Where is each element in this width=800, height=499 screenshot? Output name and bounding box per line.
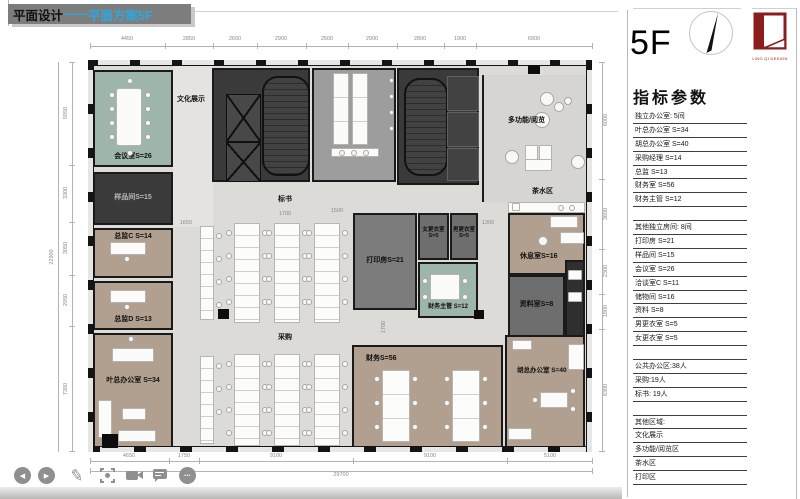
pen-tool-button[interactable]: ✎	[68, 465, 85, 487]
panel-row: 其他独立房间: 8间	[633, 221, 747, 235]
wall-top	[88, 60, 592, 66]
more-icon: •••	[184, 473, 191, 479]
dimension-line	[444, 43, 445, 49]
chair-icon	[570, 406, 576, 412]
panel-row: 独立办公室: 5间	[633, 110, 747, 124]
desk	[540, 392, 568, 408]
chair-icon	[342, 361, 348, 367]
urinal-icon	[389, 110, 394, 115]
dimension-label: 1700	[381, 321, 387, 333]
floor-plan: 会议室S=26 样品间S=15 总监C S=14 总监D S=13 叶总办公室 …	[88, 60, 592, 452]
comment-line-icon	[155, 475, 161, 476]
chair-icon	[216, 302, 222, 308]
company-logo-icon	[750, 12, 792, 54]
panel-row-spacer	[633, 402, 747, 416]
desk	[112, 348, 154, 362]
coffee-table	[122, 408, 146, 420]
chair-icon	[266, 407, 272, 413]
focus-corner	[100, 468, 104, 472]
stair-icon	[404, 78, 448, 176]
dimension-line	[69, 62, 75, 63]
stair-core	[397, 68, 479, 185]
dimension-label: 9100	[270, 453, 282, 459]
lounge-pouf	[505, 150, 519, 164]
chair-icon	[342, 276, 348, 282]
panel-row: 洽谈室C S=11	[633, 277, 747, 291]
chair-icon	[216, 256, 222, 262]
slide-right-border	[796, 8, 797, 499]
room-label: 资料室S=8	[510, 301, 563, 309]
dimension-line	[213, 43, 214, 49]
chair-icon	[216, 233, 222, 239]
panel-row: 标书: 19人	[633, 388, 747, 402]
header-rule-right2	[752, 8, 797, 9]
chair-icon	[306, 430, 312, 436]
dimension-line	[599, 329, 605, 330]
chair-icon	[482, 424, 488, 430]
chair-icon	[558, 205, 564, 211]
room-label: 叶总办公室 S=34	[95, 377, 171, 385]
wall-bottom	[88, 446, 592, 452]
chair-icon	[444, 424, 450, 430]
urinal-icon	[389, 94, 394, 99]
dimension-label: 1500	[331, 208, 343, 214]
service-cell	[447, 112, 479, 147]
chair-icon	[342, 430, 348, 436]
cabinet	[568, 270, 582, 280]
table	[430, 274, 460, 300]
column	[528, 65, 540, 74]
panel-row: 总监 S=13	[633, 166, 747, 180]
chair-icon	[145, 106, 151, 112]
sofa	[508, 428, 532, 440]
dimension-label: 3600	[603, 208, 609, 220]
chair-icon	[306, 276, 312, 282]
dimension-line	[69, 165, 75, 166]
dimension-line	[476, 43, 477, 49]
chair-icon	[266, 230, 272, 236]
chair-icon	[145, 92, 151, 98]
dimension-line	[199, 458, 200, 464]
column	[218, 309, 229, 319]
dimension-line	[599, 62, 605, 63]
room-label: 总监D S=13	[95, 316, 171, 324]
dimension-line	[165, 43, 166, 49]
chair-icon	[306, 253, 312, 259]
sofa	[118, 430, 156, 442]
chair-icon	[216, 409, 222, 415]
dimension-label: 1750	[178, 453, 190, 459]
room-label: 休息室S=16	[520, 253, 558, 261]
room-label: 打印房S=21	[355, 257, 415, 265]
dimension-label: 5950	[63, 107, 69, 119]
header-rule	[186, 11, 618, 12]
dimension-line	[90, 458, 91, 464]
slide-title: 平面设计——平面方案5F	[8, 4, 191, 24]
sofa	[550, 216, 578, 228]
dimension-line	[599, 179, 605, 180]
urinal-icon	[389, 78, 394, 83]
compass-icon	[688, 10, 734, 56]
room-label: 样品间S=15	[95, 194, 171, 202]
panel-row-spacer	[633, 207, 747, 221]
parameters-list: 独立办公室: 5间叶总办公室 S=34胡总办公室 S=40采购经理 S=14总监…	[633, 110, 747, 485]
room-label: 总监C S=14	[95, 233, 171, 241]
chair-icon	[422, 294, 428, 300]
dimension-label: 5100	[544, 453, 556, 459]
dimension-label: 1650	[180, 220, 192, 226]
chair-icon	[124, 304, 130, 310]
desk-bank	[314, 223, 340, 323]
dimension-label: 1300	[482, 220, 494, 226]
chair-icon	[374, 376, 380, 382]
dimension-label: 22900	[49, 249, 55, 264]
dimension-line	[257, 43, 258, 49]
panel-row-spacer	[633, 346, 747, 360]
procurement-label: 采购	[278, 334, 292, 342]
service-cell	[447, 76, 479, 111]
chair-icon	[226, 430, 232, 436]
chair-icon	[226, 407, 232, 413]
meeting-table	[382, 370, 410, 442]
focus-corner	[111, 468, 115, 472]
camera-lens-icon	[137, 471, 143, 479]
dimension-label: 6300	[603, 384, 609, 396]
column	[474, 310, 484, 319]
panel-divider	[627, 10, 628, 497]
dimension-label: 3050	[63, 242, 69, 254]
chair-icon	[412, 376, 418, 382]
chair-icon	[351, 150, 357, 156]
dimension-label: 29700	[333, 472, 348, 478]
column	[102, 434, 118, 448]
comment-line-icon	[155, 472, 164, 473]
panel-row: 会议室 S=26	[633, 263, 747, 277]
chair-icon	[374, 400, 380, 406]
dimension-label: 2800	[414, 36, 426, 42]
laser-pointer-button[interactable]	[100, 468, 115, 483]
chair-icon	[422, 278, 428, 284]
dimension-label: 1900	[454, 36, 466, 42]
chair-icon	[145, 134, 151, 140]
dimension-line	[58, 62, 59, 452]
panel-row: 采购:19人	[633, 374, 747, 388]
desk	[110, 242, 146, 255]
dimension-label: 2900	[275, 36, 287, 42]
panel-row: 财务室 S=56	[633, 179, 747, 193]
multifunction-area	[482, 75, 587, 202]
panel-row: 男更衣室 S=5	[633, 318, 747, 332]
service-cell	[447, 148, 479, 181]
elevator-shaft-icon	[226, 94, 261, 142]
dimension-line	[353, 458, 354, 464]
chair-icon	[226, 230, 232, 236]
chair-icon	[127, 78, 133, 84]
camera-button[interactable]	[126, 469, 144, 482]
chair-icon	[128, 336, 134, 342]
sofa	[98, 400, 112, 438]
chair-icon	[462, 294, 468, 300]
dimension-line	[599, 294, 605, 295]
title-highlight: 平面方案5F	[88, 5, 153, 24]
dimension-line	[90, 43, 91, 49]
chair-icon	[109, 134, 115, 140]
chair-icon	[412, 400, 418, 406]
panel-row: 茶水区	[633, 457, 747, 471]
dimension-label: 2850	[183, 36, 195, 42]
dimension-label: 9100	[424, 453, 436, 459]
chair-icon	[216, 363, 222, 369]
chair-icon	[306, 299, 312, 305]
chair-icon	[342, 230, 348, 236]
cabinet	[568, 344, 584, 370]
dimension-line	[397, 43, 398, 49]
cabinet	[568, 292, 582, 302]
room-archive: 资料室S=8	[508, 275, 565, 340]
dimension-line	[592, 43, 593, 49]
dimension-line	[599, 451, 605, 452]
dimension-label: 6000	[603, 114, 609, 126]
desk-bank	[314, 354, 340, 446]
desk	[110, 290, 146, 303]
dimension-line	[169, 458, 170, 464]
room-label: 会议室S=26	[95, 153, 171, 161]
chair-icon	[538, 236, 548, 246]
room-finance: 财务S=56	[352, 345, 503, 448]
chair-icon	[124, 256, 130, 262]
panel-row: 打印区	[633, 471, 747, 485]
desk-bank	[274, 354, 300, 446]
dimension-label: 2300	[603, 265, 609, 277]
next-icon: ▶	[44, 472, 49, 480]
room-label: 男更衣室S=5	[452, 227, 476, 240]
dimension-line	[69, 451, 75, 452]
panel-row: 资料 S=8	[633, 304, 747, 318]
dimension-line	[592, 458, 593, 464]
dimension-label: 2950	[63, 294, 69, 306]
bid-docs-label: 标书	[278, 196, 292, 204]
chair-icon	[266, 276, 272, 282]
focus-corner	[111, 479, 115, 483]
panel-row: 文化展示	[633, 429, 747, 443]
panel-row: 打印房 S=21	[633, 235, 747, 249]
tea-area-label: 茶水区	[532, 188, 553, 196]
meeting-table	[452, 370, 480, 442]
lounge-pouf	[564, 97, 572, 105]
dimension-label: 7350	[63, 383, 69, 395]
lounge-pouf	[571, 155, 585, 169]
wall-right	[586, 60, 592, 452]
next-slide-button[interactable]: ▶	[38, 467, 55, 484]
dimension-line	[507, 458, 508, 464]
chair-icon	[306, 361, 312, 367]
chair-icon	[462, 278, 468, 284]
chair-icon	[109, 106, 115, 112]
dimension-label: 4450	[121, 36, 133, 42]
cabinet	[512, 340, 532, 350]
chair-icon	[266, 253, 272, 259]
chair-icon	[482, 376, 488, 382]
dimension-label: 4650	[123, 453, 135, 459]
panel-row: 女更衣室 S=5	[633, 332, 747, 346]
chair-icon	[363, 150, 369, 156]
chair-icon	[266, 299, 272, 305]
toilet-stalls	[333, 73, 349, 145]
wall-left	[88, 60, 94, 452]
chair-icon	[569, 205, 575, 211]
dimension-label: 2500	[321, 36, 333, 42]
slide-bottom-edge	[0, 487, 622, 499]
room-print: 打印房S=21	[353, 213, 417, 310]
chair-icon	[339, 150, 345, 156]
pen-icon: ✎	[69, 467, 85, 486]
modular-sofa	[525, 159, 552, 171]
title-prefix: 平面设计	[13, 5, 63, 24]
dimension-label: 2600	[229, 36, 241, 42]
previous-slide-button[interactable]: ◀	[14, 467, 31, 484]
panel-row: 公共办公区:38人	[633, 360, 747, 374]
dimension-label: 3300	[63, 187, 69, 199]
room-men-changing: 男更衣室S=5	[450, 213, 478, 260]
desk-bank	[234, 223, 260, 323]
dimension-line	[306, 43, 307, 49]
desk-bank	[200, 226, 214, 320]
dimension-line	[90, 461, 593, 462]
chair-icon	[226, 361, 232, 367]
desk-bank	[274, 223, 300, 323]
chair-icon	[342, 299, 348, 305]
chair-icon	[342, 384, 348, 390]
chair-icon	[226, 299, 232, 305]
chair-icon	[342, 407, 348, 413]
dimension-line	[348, 43, 349, 49]
chair-icon	[342, 253, 348, 259]
panel-row: 胡总办公室 S=40	[633, 138, 747, 152]
dimension-line	[69, 222, 75, 223]
panel-row: 其他区域:	[633, 416, 747, 430]
dimension-label: 1700	[279, 211, 291, 217]
panel-heading: 指标参数	[633, 84, 709, 108]
room-women-changing: 女更衣室S=5	[418, 213, 449, 260]
chair-icon	[306, 384, 312, 390]
panel-row: 储物间 S=16	[633, 291, 747, 305]
chair-icon	[216, 386, 222, 392]
chair-icon	[412, 424, 418, 430]
chair-icon	[444, 376, 450, 382]
elevator-core	[212, 68, 310, 182]
header-rule-right1	[633, 8, 741, 9]
lounge-pouf	[554, 102, 564, 112]
culture-corridor	[173, 65, 213, 227]
chair-icon	[145, 120, 151, 126]
panel-row: 样品间 S=15	[633, 249, 747, 263]
multifunction-label: 多功能/阅览	[508, 117, 545, 125]
chair-icon	[127, 150, 133, 156]
chair-icon	[109, 92, 115, 98]
chair-icon	[266, 384, 272, 390]
chair-icon	[570, 388, 576, 394]
room-label: 财务主管 S=12	[420, 304, 476, 311]
chair-icon	[482, 400, 488, 406]
title-dash: ——	[63, 7, 88, 21]
dimension-label: 6900	[528, 36, 540, 42]
chair-icon	[532, 397, 538, 403]
elevator-shaft-icon	[226, 142, 261, 182]
chair-icon	[226, 384, 232, 390]
room-director-d: 总监D S=13	[93, 281, 173, 330]
floor-badge: 5F	[630, 24, 672, 63]
chair-icon	[266, 361, 272, 367]
chair-icon	[226, 276, 232, 282]
dimension-label: 2900	[366, 36, 378, 42]
dimension-line	[72, 62, 73, 452]
chair-icon	[226, 253, 232, 259]
sink	[512, 203, 520, 211]
room-sample: 样品间S=15	[93, 172, 173, 225]
dimension-line	[90, 468, 91, 474]
dimension-line	[592, 468, 593, 474]
focus-corner	[100, 479, 104, 483]
desk-bank	[234, 354, 260, 446]
toilet-stalls	[352, 73, 368, 145]
chair-icon	[374, 424, 380, 430]
desk-bank	[200, 356, 214, 444]
logo-text: LING QI DESIGN	[746, 56, 794, 61]
comment-button[interactable]	[153, 469, 167, 479]
room-label: 胡总办公室 S=40	[517, 367, 567, 374]
chair-icon	[216, 279, 222, 285]
urinal-icon	[389, 126, 394, 131]
room-label: 财务S=56	[366, 355, 397, 363]
panel-row: 叶总办公室 S=34	[633, 124, 747, 138]
panel-row: 财务主管 S=12	[633, 193, 747, 207]
room-label: 女更衣室S=5	[420, 227, 447, 240]
culture-display-label: 文化展示	[177, 96, 205, 104]
stair-icon	[262, 76, 310, 176]
chair-icon	[306, 407, 312, 413]
more-options-button[interactable]: •••	[179, 467, 196, 484]
laser-pointer-icon	[105, 473, 110, 478]
panel-row: 多功能/阅览区	[633, 443, 747, 457]
dimension-line	[599, 249, 605, 250]
chair-icon	[109, 120, 115, 126]
dimension-line	[69, 275, 75, 276]
dimension-label: 1800	[603, 305, 609, 317]
chair-icon	[306, 230, 312, 236]
sofa	[560, 232, 584, 244]
panel-row: 采购经理 S=14	[633, 152, 747, 166]
conference-table	[116, 88, 142, 146]
chair-icon	[266, 430, 272, 436]
previous-icon: ◀	[20, 472, 25, 480]
chair-icon	[444, 400, 450, 406]
lounge-pouf	[540, 92, 554, 106]
dimension-line	[69, 326, 75, 327]
